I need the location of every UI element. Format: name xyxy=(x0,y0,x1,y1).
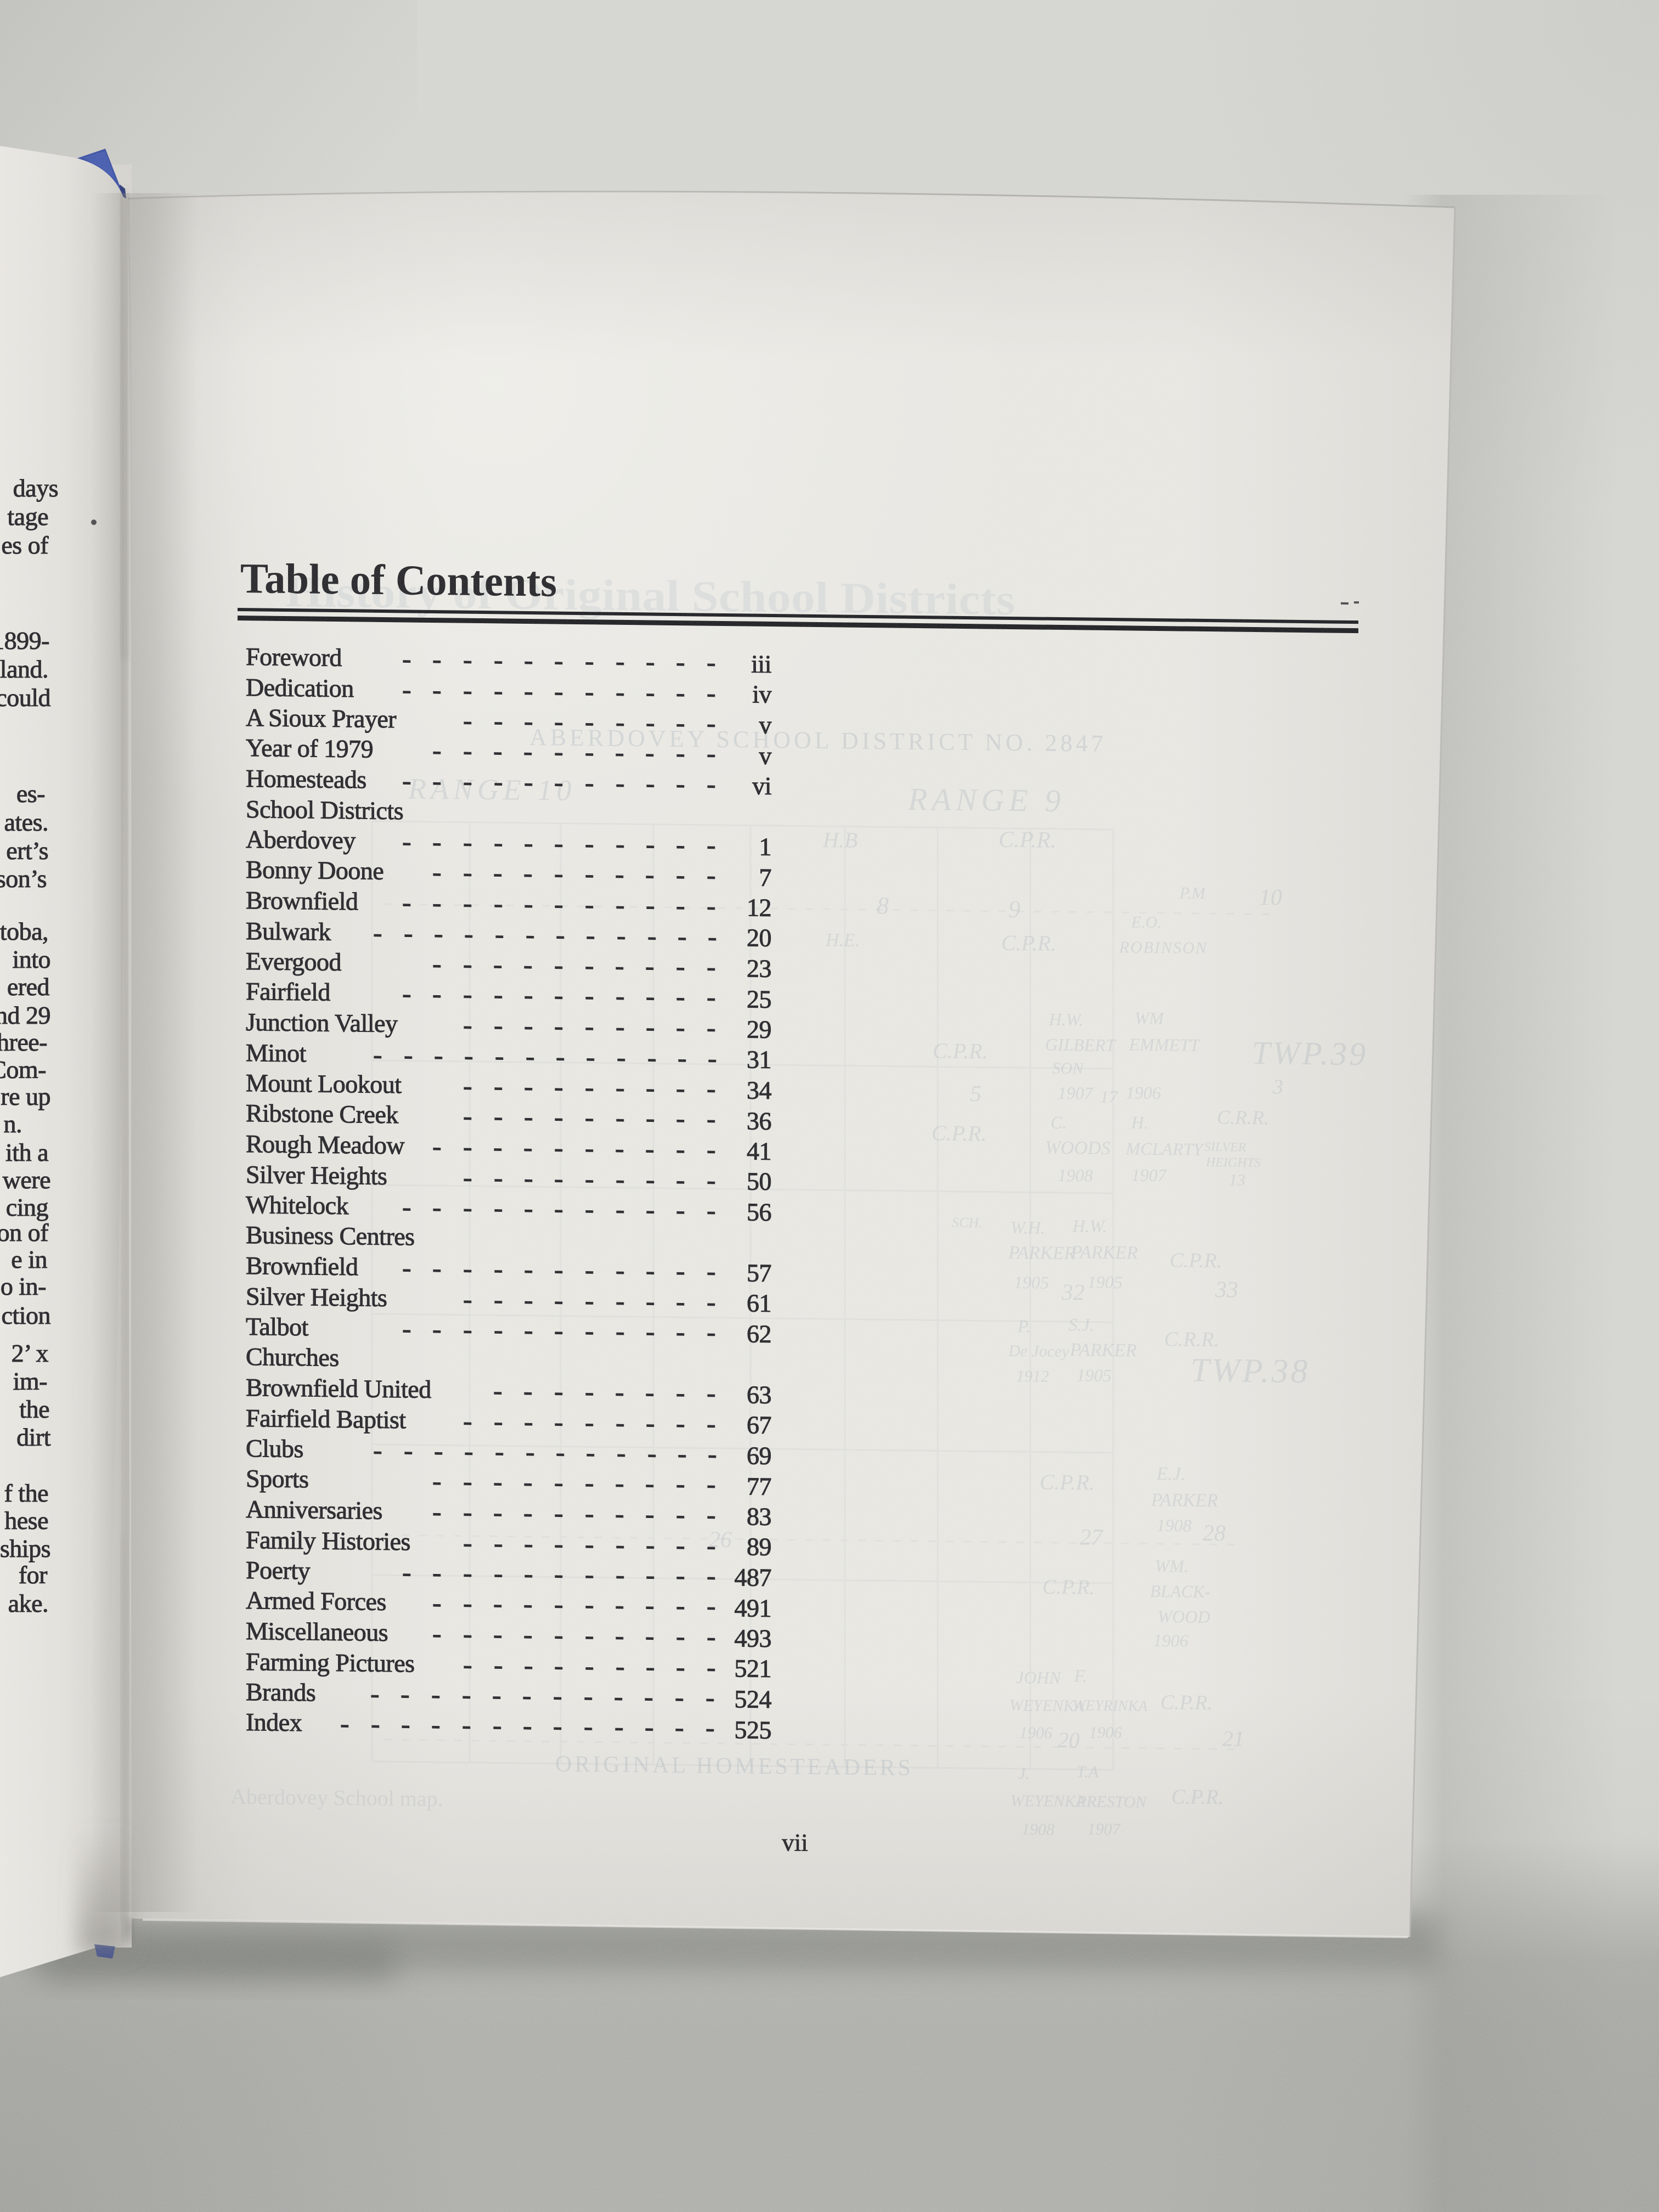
svg-text:GILBERT: GILBERT xyxy=(1045,1035,1116,1055)
svg-text:dirt: dirt xyxy=(16,1423,51,1451)
svg-text:RANGE 9: RANGE 9 xyxy=(907,781,1065,819)
svg-text:e in: e in xyxy=(11,1245,47,1273)
svg-text:1905: 1905 xyxy=(1076,1365,1111,1385)
svg-text:the: the xyxy=(19,1395,49,1423)
svg-text:21: 21 xyxy=(1222,1726,1244,1751)
svg-text:C.P.R.: C.P.R. xyxy=(933,1038,988,1063)
svg-text:31: 31 xyxy=(747,1046,771,1074)
svg-text:E.J.: E.J. xyxy=(1156,1464,1186,1485)
svg-text:8: 8 xyxy=(877,892,889,919)
svg-text:SCH.: SCH. xyxy=(952,1215,983,1231)
svg-text:De Jocey: De Jocey xyxy=(1008,1342,1069,1361)
svg-text:Brownfield: Brownfield xyxy=(246,1251,358,1280)
svg-text:23: 23 xyxy=(747,955,771,983)
svg-text:im-: im- xyxy=(13,1367,47,1395)
svg-text:land.: land. xyxy=(0,655,48,683)
svg-text:3: 3 xyxy=(1272,1075,1283,1098)
svg-text:E.O.: E.O. xyxy=(1131,913,1161,932)
svg-text:C.P.R.: C.P.R. xyxy=(1160,1691,1212,1714)
svg-text:S.J.: S.J. xyxy=(1069,1314,1094,1335)
svg-text:20: 20 xyxy=(1058,1728,1080,1752)
svg-text:Rough Meadow: Rough Meadow xyxy=(246,1130,405,1159)
svg-text:C.P.R.: C.P.R. xyxy=(1171,1785,1223,1809)
svg-text:17: 17 xyxy=(1100,1087,1119,1107)
svg-text:10: 10 xyxy=(1259,885,1282,910)
svg-text:WEYRINKA: WEYRINKA xyxy=(1073,1697,1148,1715)
svg-text:---------: --------- xyxy=(463,1649,716,1683)
svg-text:1: 1 xyxy=(759,833,771,861)
svg-text:hese: hese xyxy=(4,1506,48,1534)
svg-text:ake.: ake. xyxy=(8,1589,48,1617)
svg-text:WOOD: WOOD xyxy=(1158,1606,1210,1627)
svg-text:Churches: Churches xyxy=(246,1342,339,1372)
svg-text:Brands: Brands xyxy=(246,1678,315,1706)
svg-text:H.W.: H.W. xyxy=(1072,1216,1107,1236)
svg-text:WOODS: WOODS xyxy=(1045,1138,1110,1159)
svg-text:iv: iv xyxy=(752,680,771,708)
svg-text:1906: 1906 xyxy=(1019,1724,1052,1742)
svg-text:487: 487 xyxy=(735,1563,771,1592)
svg-text:1906: 1906 xyxy=(1089,1724,1122,1742)
svg-text:ates.: ates. xyxy=(4,808,48,836)
svg-text:Table of Contents: Table of Contents xyxy=(240,554,557,606)
svg-text:WM: WM xyxy=(1135,1008,1165,1029)
svg-text:29: 29 xyxy=(747,1015,771,1044)
svg-text:ORIGINAL HOMESTEADERS: ORIGINAL HOMESTEADERS xyxy=(555,1752,913,1781)
svg-text:C.R.R.: C.R.R. xyxy=(1217,1106,1269,1128)
svg-text:Brownfield United: Brownfield United xyxy=(246,1373,431,1403)
svg-text:Armed Forces: Armed Forces xyxy=(246,1586,386,1616)
svg-text:61: 61 xyxy=(747,1289,771,1318)
svg-text:f the: f the xyxy=(4,1479,48,1507)
svg-text:Sports: Sports xyxy=(246,1464,309,1493)
svg-text:493: 493 xyxy=(735,1624,771,1652)
svg-text:83: 83 xyxy=(747,1503,771,1531)
svg-text:C.P.R.: C.P.R. xyxy=(932,1120,986,1145)
svg-text:MCLARTY: MCLARTY xyxy=(1125,1138,1205,1159)
svg-text:89: 89 xyxy=(747,1533,771,1561)
svg-text:WM.: WM. xyxy=(1155,1556,1188,1576)
svg-text:33: 33 xyxy=(1215,1277,1238,1302)
svg-text:F.: F. xyxy=(1074,1666,1087,1685)
svg-text:on of: on of xyxy=(0,1218,49,1246)
svg-text:---------: --------- xyxy=(463,1009,716,1043)
svg-text:School Districts: School Districts xyxy=(246,795,403,825)
svg-text:es-: es- xyxy=(16,780,45,808)
svg-text:50: 50 xyxy=(747,1167,771,1196)
svg-text:---------: --------- xyxy=(463,705,716,738)
svg-text:v: v xyxy=(759,742,772,770)
svg-text:PARKER: PARKER xyxy=(1070,1242,1138,1263)
svg-text:Miscellaneous: Miscellaneous xyxy=(246,1617,388,1646)
svg-text:---------: --------- xyxy=(463,1070,716,1104)
svg-text:ith a: ith a xyxy=(5,1138,48,1166)
svg-text:C.P.R.: C.P.R. xyxy=(1001,930,1056,956)
svg-text:C.P.R.: C.P.R. xyxy=(1040,1470,1094,1495)
svg-text:---------: --------- xyxy=(463,1162,716,1195)
svg-text:H.: H. xyxy=(1131,1112,1148,1132)
svg-text:HEIGHTS: HEIGHTS xyxy=(1205,1155,1261,1170)
svg-text:Bonny Doone: Bonny Doone xyxy=(246,855,383,885)
svg-text:C.R.R.: C.R.R. xyxy=(1164,1328,1219,1351)
svg-text:tage: tage xyxy=(7,503,48,531)
svg-text:1899-: 1899- xyxy=(0,627,49,654)
svg-text:Silver Heights: Silver Heights xyxy=(246,1160,387,1190)
svg-text:Ribstone Creek: Ribstone Creek xyxy=(246,1099,398,1128)
svg-text:Evergood: Evergood xyxy=(246,947,341,976)
svg-text:Mount Lookout: Mount Lookout xyxy=(246,1069,402,1098)
svg-text:34: 34 xyxy=(747,1076,771,1105)
svg-text:C.P.R.: C.P.R. xyxy=(1042,1576,1094,1599)
svg-text:1908: 1908 xyxy=(1156,1515,1192,1536)
svg-text:cing: cing xyxy=(6,1193,49,1221)
svg-text:36: 36 xyxy=(747,1107,771,1136)
svg-text:PARKER: PARKER xyxy=(1008,1243,1075,1263)
svg-text:Silver Heights: Silver Heights xyxy=(246,1282,387,1312)
svg-text:Year of 1979: Year of 1979 xyxy=(246,733,373,763)
svg-text:H.B: H.B xyxy=(822,827,857,853)
svg-text:7: 7 xyxy=(759,864,771,891)
svg-text:525: 525 xyxy=(735,1716,771,1744)
svg-text:PARKER: PARKER xyxy=(1150,1490,1218,1511)
svg-text:---------: --------- xyxy=(463,1284,716,1317)
svg-text:62: 62 xyxy=(747,1320,771,1348)
svg-text:were: were xyxy=(3,1166,50,1194)
svg-text:Aberdovey: Aberdovey xyxy=(246,825,356,854)
svg-text:1907: 1907 xyxy=(1131,1165,1167,1185)
svg-text:Com-: Com- xyxy=(0,1056,46,1084)
svg-text:TWP.38: TWP.38 xyxy=(1190,1352,1310,1390)
svg-text:EMMETT: EMMETT xyxy=(1128,1034,1200,1054)
svg-text:Bulwark: Bulwark xyxy=(246,917,331,946)
svg-text:ships: ships xyxy=(0,1534,50,1562)
svg-text:12: 12 xyxy=(747,894,771,922)
svg-text:H.E.: H.E. xyxy=(825,930,860,951)
svg-text:5: 5 xyxy=(970,1081,981,1107)
svg-text:iii: iii xyxy=(751,650,771,678)
svg-text:ROBINSON: ROBINSON xyxy=(1119,938,1207,957)
svg-text:1912: 1912 xyxy=(1016,1367,1049,1386)
svg-text:PARKER: PARKER xyxy=(1069,1340,1137,1361)
svg-text:69: 69 xyxy=(747,1442,771,1470)
svg-text:for: for xyxy=(19,1561,47,1589)
svg-text:1905: 1905 xyxy=(1014,1272,1049,1293)
svg-text:Talbot: Talbot xyxy=(246,1312,309,1341)
svg-text:63: 63 xyxy=(747,1381,771,1409)
svg-text:re up: re up xyxy=(1,1082,50,1110)
svg-text:SILVER: SILVER xyxy=(1204,1140,1246,1155)
svg-text:1906: 1906 xyxy=(1153,1630,1188,1651)
svg-text:P.M: P.M xyxy=(1179,884,1206,902)
svg-text:o in-: o in- xyxy=(1,1272,46,1300)
svg-text:1907: 1907 xyxy=(1058,1083,1094,1103)
svg-text:vii: vii xyxy=(782,1829,808,1857)
svg-text:41: 41 xyxy=(747,1137,771,1166)
svg-text:Foreword: Foreword xyxy=(246,642,342,672)
svg-text:days: days xyxy=(13,474,58,502)
svg-text:could: could xyxy=(0,684,50,712)
svg-text:toba,: toba, xyxy=(0,917,48,945)
svg-text:Minot: Minot xyxy=(246,1039,307,1067)
svg-text:ert’s: ert’s xyxy=(6,837,48,865)
svg-text:v: v xyxy=(759,711,772,739)
svg-text:9: 9 xyxy=(1008,896,1020,923)
svg-text:Farming Pictures: Farming Pictures xyxy=(246,1647,415,1677)
svg-text:Junction Valley: Junction Valley xyxy=(246,1008,398,1037)
svg-text:H.W.: H.W. xyxy=(1048,1009,1084,1030)
svg-text:son’s: son’s xyxy=(0,865,47,893)
svg-text:20: 20 xyxy=(747,924,771,952)
svg-text:P.: P. xyxy=(1017,1316,1030,1336)
svg-text:491: 491 xyxy=(735,1594,771,1622)
svg-text:A Sioux Prayer: A Sioux Prayer xyxy=(246,703,396,733)
svg-text:Family Histories: Family Histories xyxy=(246,1526,410,1555)
svg-text:hree-: hree- xyxy=(0,1028,47,1056)
svg-text:Whitelock: Whitelock xyxy=(246,1190,349,1220)
svg-text:C.: C. xyxy=(1051,1113,1066,1132)
svg-text:77: 77 xyxy=(747,1472,771,1501)
svg-text:Index: Index xyxy=(246,1708,302,1736)
svg-text:C.P.R.: C.P.R. xyxy=(998,827,1056,853)
svg-text:1908: 1908 xyxy=(1058,1165,1093,1186)
svg-text:Fairfield: Fairfield xyxy=(246,977,330,1006)
svg-text:2’ x: 2’ x xyxy=(12,1339,49,1367)
svg-text:ered: ered xyxy=(7,973,50,1001)
svg-text:Business Centres: Business Centres xyxy=(246,1221,415,1250)
svg-text:n.: n. xyxy=(4,1110,22,1138)
svg-text:Brownfield: Brownfield xyxy=(246,886,358,915)
svg-text:---------: --------- xyxy=(463,1527,716,1561)
svg-text:Fairfield Baptist: Fairfield Baptist xyxy=(246,1404,406,1434)
svg-text:---------: --------- xyxy=(463,1101,716,1134)
svg-text:Aberdovey School map.: Aberdovey School map. xyxy=(230,1784,443,1811)
svg-text:25: 25 xyxy=(747,985,771,1014)
svg-text:28: 28 xyxy=(1203,1521,1226,1546)
svg-text:es of: es of xyxy=(1,531,49,559)
svg-text:nd 29: nd 29 xyxy=(0,1001,50,1029)
svg-text:C.P.R.: C.P.R. xyxy=(1170,1249,1222,1272)
svg-text:vi: vi xyxy=(752,772,771,800)
svg-text:1907: 1907 xyxy=(1087,1820,1121,1839)
svg-text:1905: 1905 xyxy=(1087,1272,1122,1293)
svg-text:---------: --------- xyxy=(463,1406,716,1439)
svg-text:W.H.: W.H. xyxy=(1011,1217,1045,1238)
svg-text:JOHN: JOHN xyxy=(1016,1667,1062,1688)
svg-text:Dedication: Dedication xyxy=(246,673,354,702)
svg-text:Poerty: Poerty xyxy=(246,1556,311,1584)
svg-text:32: 32 xyxy=(1061,1280,1085,1305)
svg-text:J.: J. xyxy=(1018,1764,1030,1782)
svg-text:SON: SON xyxy=(1052,1059,1085,1078)
svg-text:524: 524 xyxy=(735,1685,772,1713)
svg-text:TWP.39: TWP.39 xyxy=(1252,1035,1368,1072)
svg-text:Anniversaries: Anniversaries xyxy=(246,1495,382,1525)
svg-text:57: 57 xyxy=(747,1259,771,1288)
svg-text:WEYENKA: WEYENKA xyxy=(1011,1792,1086,1811)
svg-text:1906: 1906 xyxy=(1126,1082,1161,1103)
svg-text:1908: 1908 xyxy=(1022,1820,1054,1839)
svg-text:27: 27 xyxy=(1080,1525,1104,1550)
svg-text:into: into xyxy=(12,945,50,973)
svg-text:ction: ction xyxy=(2,1301,51,1329)
svg-text:67: 67 xyxy=(747,1411,771,1440)
svg-text:13: 13 xyxy=(1229,1171,1245,1189)
svg-text:56: 56 xyxy=(747,1198,771,1227)
svg-text:PRESTON: PRESTON xyxy=(1076,1792,1148,1811)
svg-text:Homesteads: Homesteads xyxy=(246,764,366,793)
svg-text:Clubs: Clubs xyxy=(246,1434,303,1463)
svg-text:T.A: T.A xyxy=(1076,1763,1099,1781)
svg-text:BLACK-: BLACK- xyxy=(1150,1581,1210,1601)
svg-text:521: 521 xyxy=(735,1654,771,1683)
